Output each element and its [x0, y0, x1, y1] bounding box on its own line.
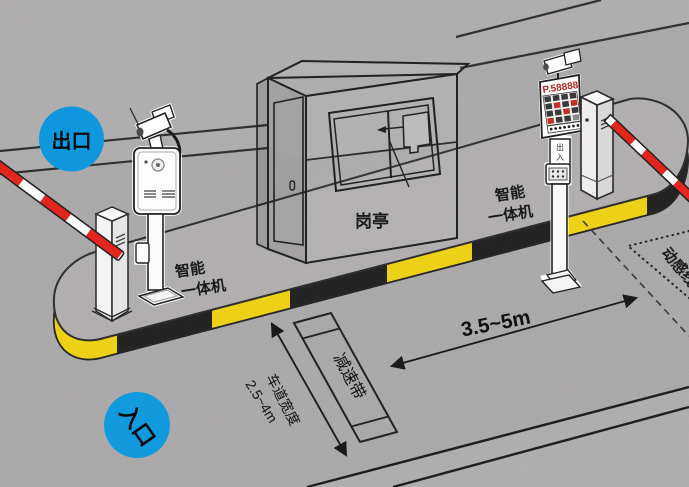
svg-text:出口: 出口 [52, 130, 92, 153]
svg-text:入: 入 [556, 153, 564, 162]
svg-text:岗亭: 岗亭 [355, 211, 389, 231]
svg-text:出: 出 [556, 142, 564, 152]
